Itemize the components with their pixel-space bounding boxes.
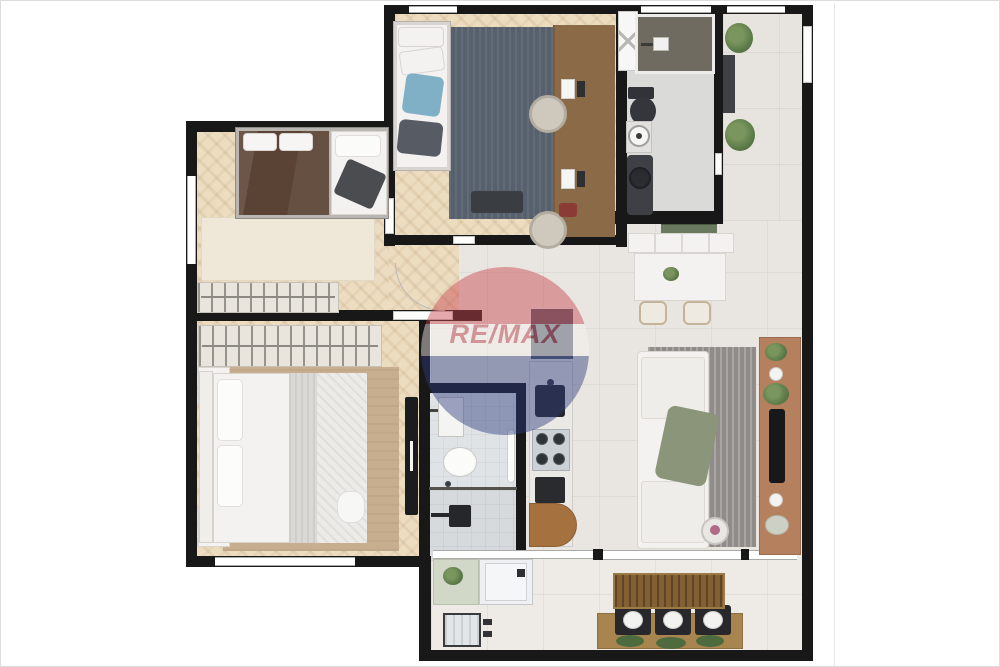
washer-latch-icon <box>517 569 525 577</box>
service-window-sill <box>433 550 593 559</box>
balcony-bar-table <box>613 573 725 609</box>
tv-console-plant-3 <box>765 515 789 535</box>
office-dark-pillow <box>396 119 443 157</box>
balcony-greenery-2 <box>656 637 686 649</box>
stool-plate-1 <box>623 611 643 629</box>
tank-faucet-icon-2 <box>483 631 492 637</box>
master-wardrobe-rod <box>202 345 378 347</box>
office-monitor-2 <box>577 171 585 187</box>
floor-plan-canvas: RE/MAX <box>0 0 1000 667</box>
sink-drain-icon <box>636 133 642 139</box>
burner-icon-1 <box>536 433 548 445</box>
entry-plant-1 <box>725 23 753 53</box>
bed-headboard <box>199 371 213 543</box>
remax-balloon-watermark: RE/MAX <box>421 267 589 435</box>
ensuite-shower-arm <box>431 513 451 517</box>
office-bench <box>471 191 523 213</box>
laundry-tank <box>443 613 481 647</box>
dining-table <box>634 253 726 301</box>
master-bedroom-window <box>215 557 355 566</box>
bedroom2-pillow-1 <box>243 133 277 151</box>
office-monitor-1 <box>577 81 585 97</box>
wall-bathroom-right <box>714 10 723 216</box>
console-table <box>661 224 717 233</box>
master-tv-highlight <box>410 441 413 471</box>
tv <box>769 409 785 483</box>
burner-icon-4 <box>553 453 565 465</box>
wall-balcony-bottom <box>419 650 813 661</box>
tank-faucet-icon-1 <box>483 619 492 625</box>
balcony-greenery-3 <box>696 635 724 647</box>
stool-plate-2 <box>663 611 683 629</box>
kitchen-wood-counter-end <box>529 503 577 547</box>
wall-right <box>802 5 813 661</box>
bedroom2-rug <box>201 217 375 281</box>
tv-console-plant-1 <box>765 343 787 361</box>
tv-console-bowl <box>769 493 783 507</box>
entry-window <box>727 6 785 13</box>
dining-chair-1 <box>639 301 667 325</box>
entry-shelf <box>723 55 735 113</box>
burner-icon-3 <box>536 453 548 465</box>
balcony-sliding-door-1 <box>603 550 741 560</box>
balcony-greenery-1 <box>616 635 644 647</box>
ensuite-shower-divider <box>429 487 517 490</box>
wall-balcony-left <box>419 556 431 661</box>
stool-plate-3 <box>703 611 723 629</box>
bedroom2-window <box>187 176 196 264</box>
bedroom2-chaise-pillow <box>335 135 381 157</box>
entry-door <box>803 26 812 83</box>
wall-balcony-mullion-2 <box>741 549 749 560</box>
bed-pillow-2 <box>217 445 243 507</box>
ensuite-sliding-door <box>507 429 515 483</box>
ensuite-shower-head-icon <box>449 505 471 527</box>
office-chair-1 <box>529 95 567 133</box>
bed-pillow-1 <box>217 379 243 441</box>
bed-runner <box>289 373 317 543</box>
flower-vase-icon <box>710 525 720 535</box>
service-plant <box>443 567 463 585</box>
tv-console-plant-2 <box>763 383 789 405</box>
office-laptop-2 <box>561 169 575 189</box>
remax-watermark-text: RE/MAX <box>421 319 589 349</box>
oven <box>535 477 565 503</box>
bedroom2-pillow-2 <box>279 133 313 151</box>
shower-head-icon <box>653 37 669 51</box>
vanity-bowl <box>629 167 651 189</box>
office-desk-accessory <box>559 203 577 217</box>
bathroom-window <box>641 6 711 13</box>
dining-chair-2 <box>683 301 711 325</box>
burner-icon-2 <box>553 433 565 445</box>
office-bed-pillow-1 <box>398 27 444 47</box>
table-centerpiece-plant <box>663 267 679 281</box>
wall-balcony-mullion-1 <box>593 549 603 560</box>
office-window <box>409 6 457 13</box>
ensuite-toilet <box>443 447 477 477</box>
bathroom-door <box>715 153 722 175</box>
bedroom2-wardrobe-rod <box>201 296 335 298</box>
office-blue-throw <box>401 73 444 118</box>
bed-foot-towel <box>337 491 365 523</box>
tv-console-plate <box>769 367 783 381</box>
dining-banquette <box>628 233 734 253</box>
hall-door <box>453 236 475 244</box>
photo-edge-line <box>834 3 835 666</box>
sofa-cushion-2 <box>641 481 705 543</box>
office-laptop-1 <box>561 79 575 99</box>
entry-plant-2 <box>725 119 755 151</box>
